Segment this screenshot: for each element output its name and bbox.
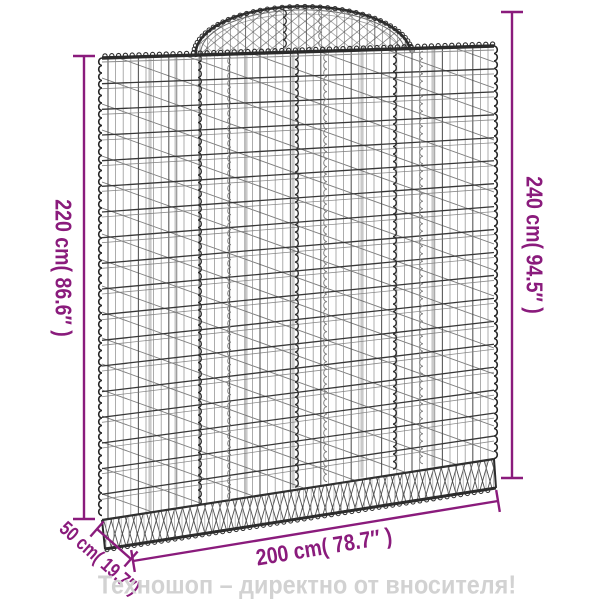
gabion-basket-illustration	[0, 0, 600, 600]
store-watermark-text: Техношоп – директно от вносителя!	[98, 570, 516, 600]
product-image: 220 cm( 86.6″ ) 240 cm( 94.5″ ) 200 cm( …	[0, 0, 600, 600]
dimension-label-back-height: 240 cm( 94.5″ )	[521, 176, 548, 314]
dimension-label-front-height: 220 cm( 86.6″ )	[50, 199, 77, 337]
